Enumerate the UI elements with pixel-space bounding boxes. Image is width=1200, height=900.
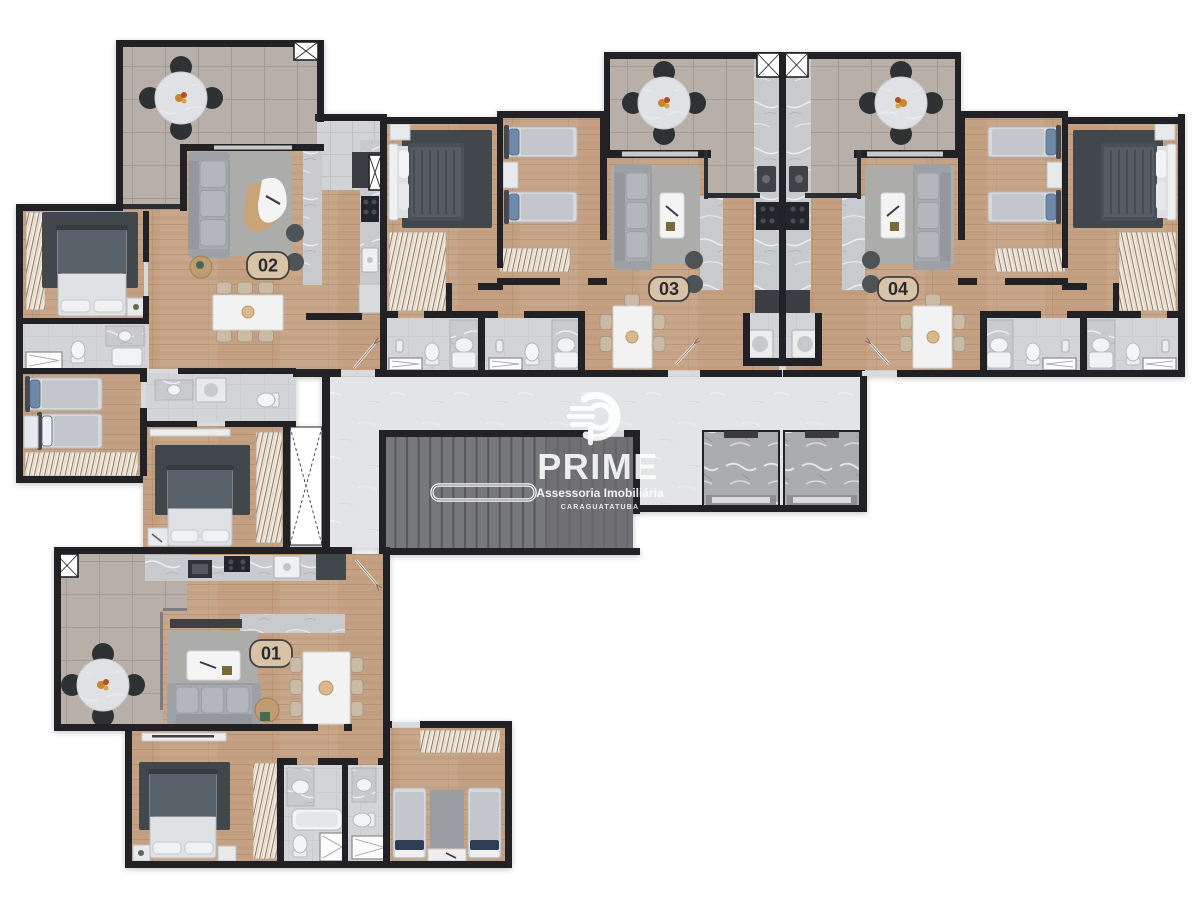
svg-text:02: 02 xyxy=(258,256,278,276)
svg-text:04: 04 xyxy=(888,279,908,299)
svg-text:01: 01 xyxy=(261,644,281,664)
svg-text:Assessoria Imobiliária: Assessoria Imobiliária xyxy=(536,486,664,500)
svg-text:03: 03 xyxy=(659,279,679,299)
svg-text:CARAGUATATUBA: CARAGUATATUBA xyxy=(561,504,640,511)
svg-text:PRIME: PRIME xyxy=(537,446,659,487)
